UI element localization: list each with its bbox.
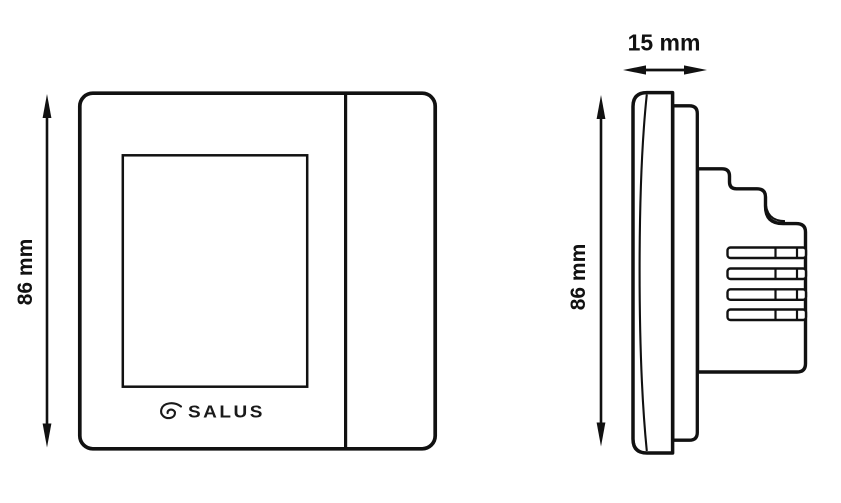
side-backplate-outline: [673, 106, 698, 440]
front-view: [80, 93, 435, 449]
vent-slot: [728, 289, 807, 300]
vent-slot: [728, 269, 807, 280]
vent-slot: [728, 248, 807, 259]
salus-logo: SALUS: [157, 400, 265, 425]
arrowhead-up-icon: [597, 95, 606, 119]
salus-logo-text: SALUS: [188, 402, 265, 422]
side-depth-dimension-arrow: [623, 65, 707, 74]
vent-slot: [728, 310, 807, 321]
side-depth-label: 15 mm: [628, 30, 701, 57]
arrowhead-down-icon: [597, 423, 606, 447]
salus-swirl-icon: [157, 400, 184, 425]
front-height-label: 86 mm: [14, 239, 38, 306]
arrowhead-right-icon: [684, 65, 707, 74]
side-height-dimension-arrow: [597, 95, 606, 447]
front-body-outline: [80, 93, 435, 449]
line-art: [0, 0, 841, 503]
arrowhead-down-icon: [43, 424, 52, 448]
side-view: [633, 93, 806, 453]
side-height-label: 86 mm: [567, 244, 591, 311]
arrowhead-left-icon: [623, 65, 646, 74]
front-height-dimension-arrow: [43, 94, 52, 448]
arrowhead-up-icon: [43, 94, 52, 118]
thermostat-dimension-diagram: 86 mm 86 mm 15 mm SALUS: [0, 0, 841, 503]
